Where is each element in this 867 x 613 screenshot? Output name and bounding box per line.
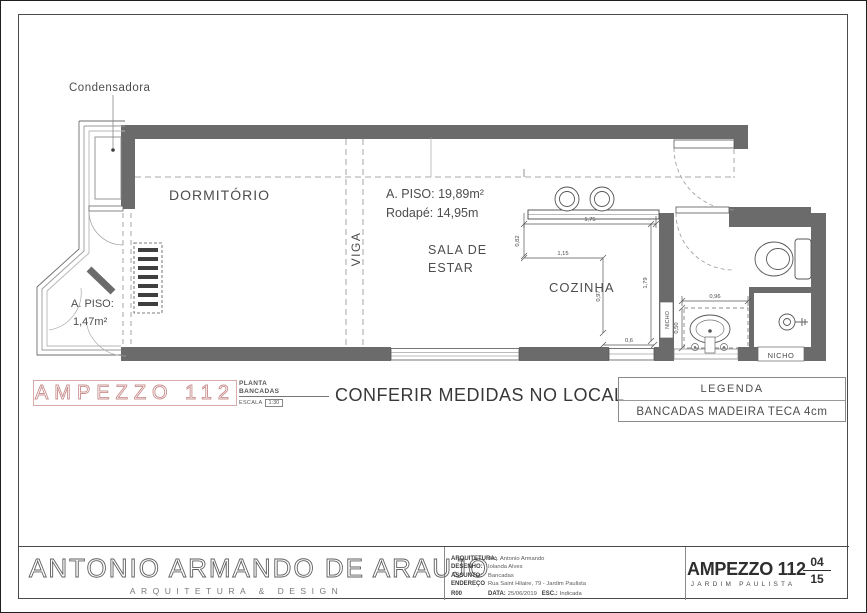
area-note-line2: Rodapé: 14,95m xyxy=(386,206,478,220)
dim-bath-counter-width: 0,96 xyxy=(709,294,720,300)
balcony-door-swing xyxy=(89,211,123,245)
sheet-name-block: PLANTA BANCADAS ESCALA 1:30 xyxy=(239,380,334,407)
sheet-number-current: 04 xyxy=(803,555,831,571)
dashed-lines xyxy=(123,137,734,347)
bay-area-line2: 1,47m² xyxy=(73,316,108,328)
bath-door-swing xyxy=(676,213,733,270)
dim-counter-side: 0,82 xyxy=(515,235,521,246)
legend-box: LEGENDA BANCADAS MADEIRA TECA 4cm xyxy=(618,377,846,422)
info-row: DESENHO: Iolanda Alves xyxy=(451,563,681,571)
niche-wall-label: NICHO xyxy=(665,310,671,328)
ac-unit xyxy=(134,243,162,313)
info-row: ASSUNTO: Bancadas xyxy=(451,572,681,580)
info-label: ASSUNTO: xyxy=(451,572,488,580)
project-outline-box: AMPEZZO 112 xyxy=(33,380,237,406)
legend-title: LEGENDA xyxy=(619,378,845,401)
dim-kitchen-depth: 1,79 xyxy=(643,277,649,288)
balcony-door-leaf xyxy=(89,206,123,211)
project-title-block: AMPEZZO 112 JARDIM PAULISTA xyxy=(687,559,799,588)
date-label: DATA: xyxy=(488,590,506,598)
info-label: DESENHO: xyxy=(451,563,488,571)
bathroom-sink xyxy=(684,308,748,353)
info-row: ARQUITETURA: Arq. Antonio Armando xyxy=(451,555,681,563)
info-row: ENDEREÇO Rua Saint Hilaire, 79 - Jardim … xyxy=(451,580,681,588)
entry-door-leaf xyxy=(674,140,734,148)
revision-code: R00 xyxy=(451,590,488,598)
dim-bath-counter-depth: 0,50 xyxy=(674,322,680,333)
toilet xyxy=(755,239,811,279)
condenser-label: Condensadora xyxy=(69,82,151,94)
project-info-table: ARQUITETURA: Arq. Antonio Armando DESENH… xyxy=(451,555,681,598)
scale-label: ESCALA xyxy=(239,400,263,406)
niche-shower-label: NICHO xyxy=(768,351,795,360)
revision-row: R00 DATA: 25/06/2019 ESC.: Indicada xyxy=(451,590,681,598)
info-value: Rua Saint Hilaire, 79 - Jardim Paulista xyxy=(488,580,586,588)
project-outline-text: AMPEZZO 112 xyxy=(35,382,235,405)
info-label: ARQUITETURA: xyxy=(451,555,488,563)
room-label-sala-1: SALA DE xyxy=(428,243,487,257)
dim-counter-front: 1,75 xyxy=(584,217,595,223)
scale-value: 1:30 xyxy=(265,399,284,407)
scale-field-value: Indicada xyxy=(560,590,582,598)
room-label-cozinha: COZINHA xyxy=(549,280,615,295)
info-value: Iolanda Alves xyxy=(488,563,522,571)
sheet-name-rule xyxy=(239,396,329,397)
room-label-sala-2: ESTAR xyxy=(428,261,474,275)
sheet-number: 04 15 xyxy=(803,555,831,586)
room-label-dormitorio: DORMITÓRIO xyxy=(169,187,270,203)
logo-tagline: ARQUITETURA & DESIGN xyxy=(29,586,444,596)
dim-bottom-gap: 0,6 xyxy=(625,338,633,344)
drawing-sheet: 1,75 0,82 1,15 0,97 0,6 1,79 xyxy=(0,0,867,613)
info-label: ENDEREÇO xyxy=(451,580,488,588)
bay-area-line1: A. PISO: xyxy=(71,298,114,310)
stool-icon xyxy=(590,187,614,211)
info-value: Bancadas xyxy=(488,572,514,580)
logo-name: ANTONIO ARMANDO DE ARAUJO xyxy=(29,553,444,584)
project-district: JARDIM PAULISTA xyxy=(687,581,799,588)
date-value: 25/06/2019 xyxy=(508,590,537,598)
floor-plan: 1,75 0,82 1,15 0,97 0,6 1,79 xyxy=(1,1,867,613)
shower-head-icon xyxy=(779,314,808,330)
architect-logo: ANTONIO ARMANDO DE ARAUJO ARQUITETURA & … xyxy=(29,553,444,596)
scale-field-label: ESC.: xyxy=(542,590,558,598)
title-block: ANTONIO ARMANDO DE ARAUJO ARQUITETURA & … xyxy=(19,546,849,599)
sheet-number-total: 15 xyxy=(803,571,831,586)
sheet-name-line2: BANCADAS xyxy=(239,388,334,396)
project-name: AMPEZZO 112 xyxy=(687,559,799,580)
legend-item: BANCADAS MADEIRA TECA 4cm xyxy=(619,401,845,422)
verify-measures-note: CONFERIR MEDIDAS NO LOCAL xyxy=(335,385,625,406)
kitchen-counter xyxy=(528,187,659,219)
dim-inner-width: 1,15 xyxy=(557,251,568,257)
beam-label-viga: VIGA xyxy=(349,232,363,267)
condenser-leader xyxy=(111,95,115,152)
entry-door-swing xyxy=(674,148,736,210)
bay-diagonal-wall xyxy=(89,269,113,292)
bath-door-leaf xyxy=(676,207,729,213)
info-value: Arq. Antonio Armando xyxy=(488,555,544,563)
area-note-line1: A. PISO: 19,89m² xyxy=(386,187,484,201)
titleblock-divider-2 xyxy=(685,547,686,600)
stool-icon xyxy=(555,187,579,211)
sheet-name-line1: PLANTA xyxy=(239,380,334,388)
